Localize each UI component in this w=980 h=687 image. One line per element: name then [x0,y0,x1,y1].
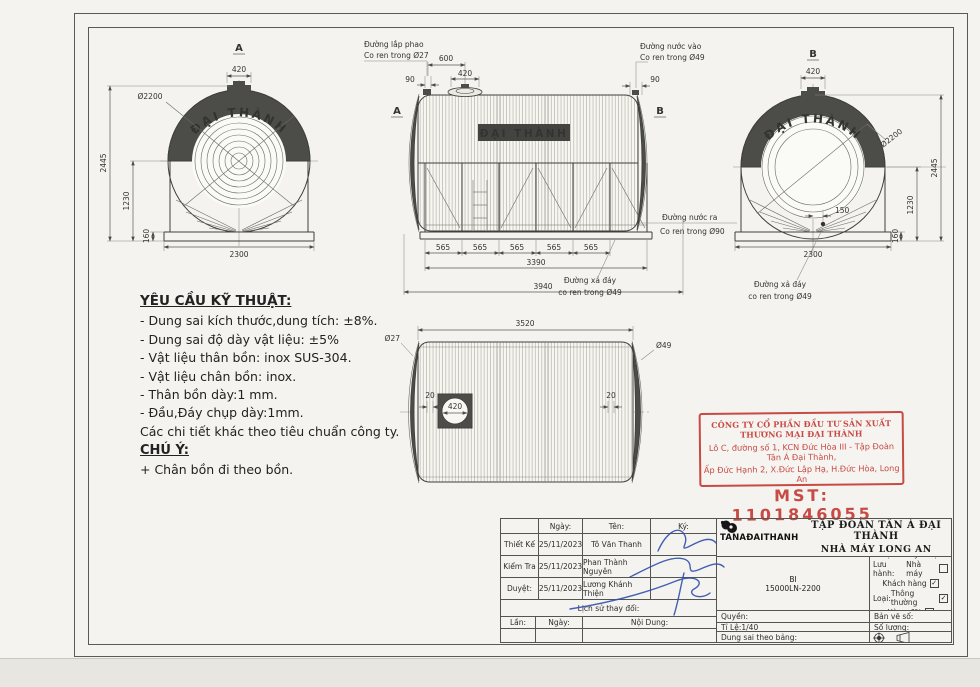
checkbox-nha-may[interactable] [939,564,948,573]
dim-dia-view-a: Ø2200 [138,92,163,101]
scope-prefix: Lưu hành: [873,560,906,578]
title-block: Ngày: Tên: Ký: Thiết Kế 25/11/2023 Tô Vă… [500,518,952,643]
note-line: - Dung sai kích thước,dung tích: ±8%. [140,312,420,330]
dim-20-left: 20 [425,391,435,400]
note-line: Các chi tiết khác theo tiêu chuẩn công t… [140,423,420,441]
company-title: TẬP ĐOÀN TÂN Á ĐẠI THÀNH NHÀ MÁY LONG AN [801,520,951,555]
scope-label: Nhà máy [906,560,939,578]
top-view: 420 3520 Ø27 Ø49 20 20 [385,319,672,483]
tb-sign-cell [650,577,717,600]
view-b: ĐẠI THÀNH Ø2200 150 Đ [733,49,946,301]
stamp-address-2: Ấp Đức Hạnh 2, X.Đức Lập Hạ, H.Đức Hòa, … [701,463,902,485]
scope-label: Khách hàng [882,579,929,588]
drain-sub-view-b: co ren trong Ø49 [748,292,812,301]
checkbox-thong-thuong[interactable]: ✓ [939,594,948,603]
section-b-label: B [656,106,664,117]
tb-projection-cell [869,631,952,643]
tb-history: Lịch sử thay đổi: [500,599,717,617]
company-line-2: NHÀ MÁY LONG AN [801,544,951,555]
tb-empty [582,628,717,643]
company-stamp: CÔNG TY CỔ PHẦN ĐẦU TƯ SẢN XUẤT THƯƠNG M… [699,411,905,487]
brand-plate: ĐẠI THÀNH [480,127,569,140]
dim-3940: 3940 [533,282,552,291]
front-elevation: ĐẠI THÀNH A B [364,40,737,297]
dim-3390: 3390 [526,258,545,267]
projection-symbol-icon [870,632,916,643]
inlet-sub: Co ren trong Ø49 [640,53,705,62]
model-code-2: 15000LN-2200 [765,584,820,593]
scan-edge-shadow [0,658,980,687]
dim-160-view-a: 160 [142,229,151,244]
float-pipe-label: Đường lắp phao [364,40,424,49]
tb-header-ngay: Ngày: [538,518,583,534]
tb-date: 25/11/2023 [538,555,583,578]
dim-565: 565 [584,243,599,252]
stamp-address-1: Lô C, đường số 1, KCN Đức Hòa III - Tập … [701,441,902,463]
dim-90-right: 90 [650,75,660,84]
dim-2445-view-b: 2445 [930,158,939,177]
panda-logo-icon [717,519,739,537]
outlet-label: Đường nước ra [662,213,717,222]
inlet-label: Đường nước vào [640,42,702,51]
dim-420-elevation: 420 [458,69,473,78]
tb-name: Phan Thành Nguyên [582,555,651,578]
dim-2300-view-b: 2300 [803,250,822,259]
dim-3520: 3520 [515,319,534,328]
tb-date: 25/11/2023 [538,533,583,556]
note-line: - Vật liệu chân bồn: inox. [140,368,420,386]
tb-name: Tô Văn Thanh [582,533,651,556]
scope-title: Phạm vi kỹ thuật: [877,556,943,559]
scope-row: Khách hàng ✓ [882,579,938,588]
scope-label: Thông thường [891,589,939,607]
scope-row: Loại: Thông thường ✓ [873,589,948,607]
float-pipe-sub: Co ren trong Ø27 [364,51,429,60]
tanadaithanh-logo: TANAĐAITHANH [717,531,801,545]
dim-1230-view-b: 1230 [906,195,915,214]
note-line: - Đầu,Đáy chụp dày:1mm. [140,404,420,422]
note-line: - Thân bồn dày:1 mm. [140,386,420,404]
tb-header-blank [500,518,539,534]
drain-label-view-b: Đường xả đáy [754,280,807,289]
tb-role-duyet: Duyệt: [500,577,539,600]
tb-scope-cell: Phạm vi kỹ thuật: Lưu hành: Nhà máy Khác… [869,556,952,611]
view-a-label: A [235,43,243,54]
view-b-label: B [809,49,817,60]
view-a: ĐẠI THÀNH A 420 Ø2200 [99,43,318,259]
dim-2300-view-a: 2300 [229,250,248,259]
tb-empty [500,628,536,643]
note-line: - Dung sai độ dày vật liệu: ±5% [140,331,420,349]
scope-prefix: Loại: [873,594,891,603]
tb-empty [535,628,583,643]
dim-1230-view-a: 1230 [122,191,131,210]
dim-dia-view-b: Ø2200 [879,127,904,150]
note-line: + Chân bồn đi theo bồn. [140,461,420,479]
dim-o49: Ø49 [656,341,672,350]
dim-565: 565 [436,243,451,252]
dim-565: 565 [547,243,562,252]
tb-sign-cell [650,533,717,556]
scope-row: Lưu hành: Nhà máy [873,560,948,578]
notes-chu-y: CHÚ Ý: [140,442,420,460]
dim-565: 565 [473,243,488,252]
company-line-1: TẬP ĐOÀN TÂN Á ĐẠI THÀNH [801,520,951,542]
dim-150: 150 [835,206,850,215]
note-line: - Vật liệu thân bồn: inox SUS-304. [140,349,420,367]
drain-label-elevation: Đường xả đáy [564,276,617,285]
tb-date: 25/11/2023 [538,577,583,600]
dim-600: 600 [439,54,454,63]
tb-header-ten: Tên: [582,518,651,534]
tb-role-thiet-ke: Thiết Kế [500,533,539,556]
dim-420-manhole: 420 [448,402,463,411]
dim-2445-view-a: 2445 [99,153,108,172]
tb-header-ky: Ký: [650,518,717,534]
tb-name: Lương Khánh Thiện [582,577,651,600]
model-code-1: BI [789,575,796,584]
technical-notes: YÊU CẦU KỸ THUẬT: - Dung sai kích thước,… [140,292,420,479]
drawing-sheet: ĐẠI THÀNH A 420 Ø2200 [0,0,980,687]
stamp-company-name: CÔNG TY CỔ PHẦN ĐẦU TƯ SẢN XUẤT THƯƠNG M… [701,418,902,440]
section-a-label: A [393,106,401,117]
tb-role-kiem-tra: Kiểm Tra [500,555,539,578]
dim-20-right: 20 [606,391,616,400]
outlet-sub: Co ren trong Ø90 [660,227,725,236]
dim-565: 565 [510,243,525,252]
tb-model-cell: BI 15000LN-2200 [716,556,870,611]
dim-420-view-b: 420 [806,67,821,76]
drain-sub-elevation: co ren trong Ø49 [558,288,622,297]
tb-sign-cell [650,555,717,578]
dim-160-view-b: 160 [891,229,900,244]
checkbox-khach-hang[interactable]: ✓ [930,579,939,588]
dim-90-left: 90 [405,75,415,84]
dim-420-view-a: 420 [232,65,247,74]
notes-title: YÊU CẦU KỸ THUẬT: [140,292,420,310]
tb-dungsai: Dung sai theo bảng: [716,631,870,643]
tb-company-cell: TANAĐAITHANH TẬP ĐOÀN TÂN Á ĐẠI THÀNH NH… [716,518,952,557]
